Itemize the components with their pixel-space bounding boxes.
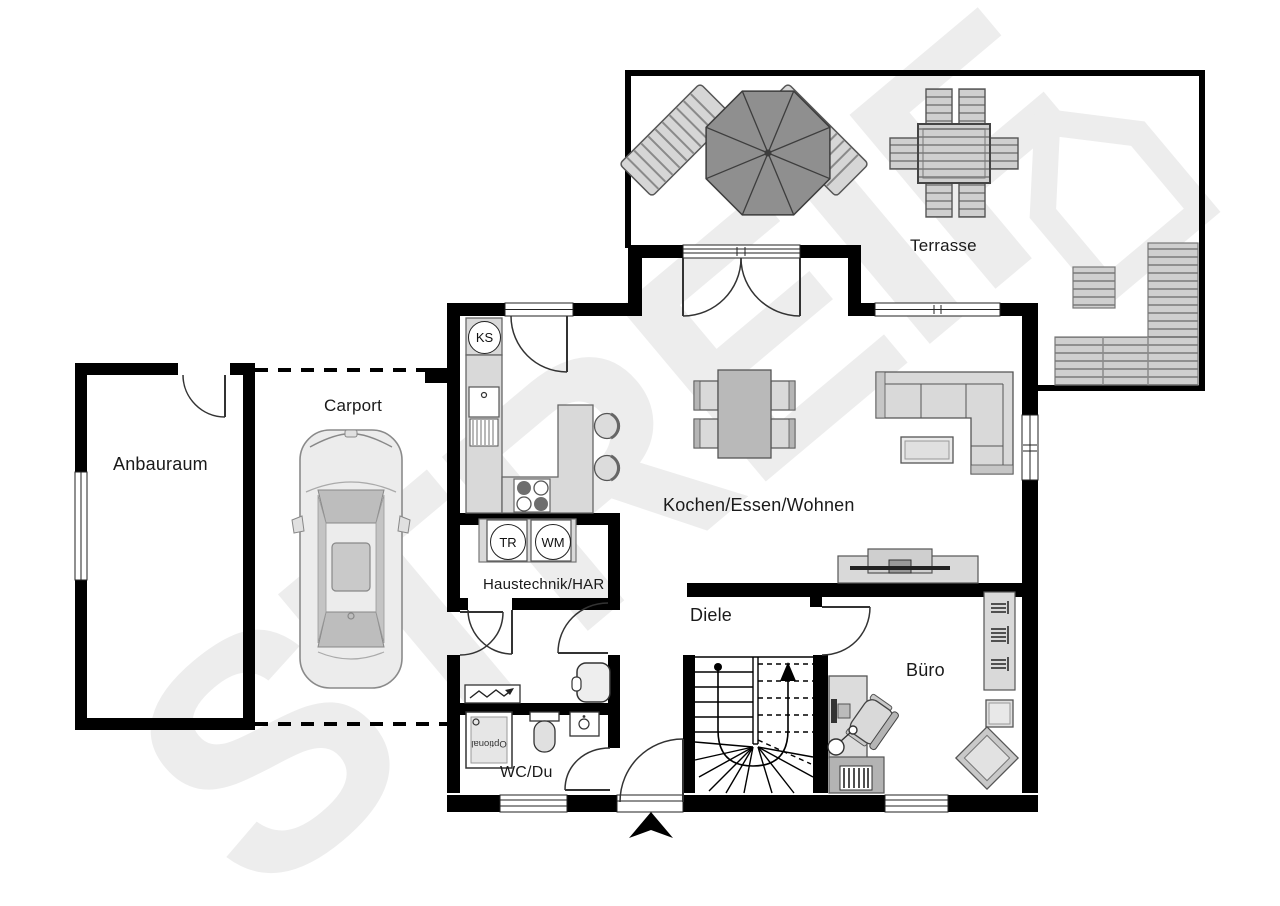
toilet	[530, 712, 559, 752]
parasol	[706, 91, 830, 215]
monitor-icon	[831, 699, 837, 723]
armchair	[956, 727, 1018, 789]
coffee-table	[901, 437, 953, 463]
wardrobe-shelf	[465, 685, 520, 703]
car	[292, 430, 410, 688]
side-stool	[986, 700, 1013, 727]
stairs	[695, 657, 813, 793]
entrance-arrow	[629, 812, 673, 838]
floor-plan: STREIF	[0, 0, 1280, 906]
drawer-unit	[829, 757, 884, 793]
wc-sink	[570, 712, 599, 736]
bookshelf	[984, 592, 1015, 690]
kitchen-sink	[469, 387, 499, 446]
stair-walk-line	[714, 662, 796, 766]
shower	[466, 712, 512, 768]
floor-plan-drawing: STREIF	[0, 0, 1280, 906]
tv-lowboard	[838, 549, 978, 583]
vestibule-basin	[572, 663, 610, 702]
washer-dryer-unit	[479, 519, 576, 562]
fridge-box	[466, 318, 502, 355]
stove	[514, 479, 550, 512]
